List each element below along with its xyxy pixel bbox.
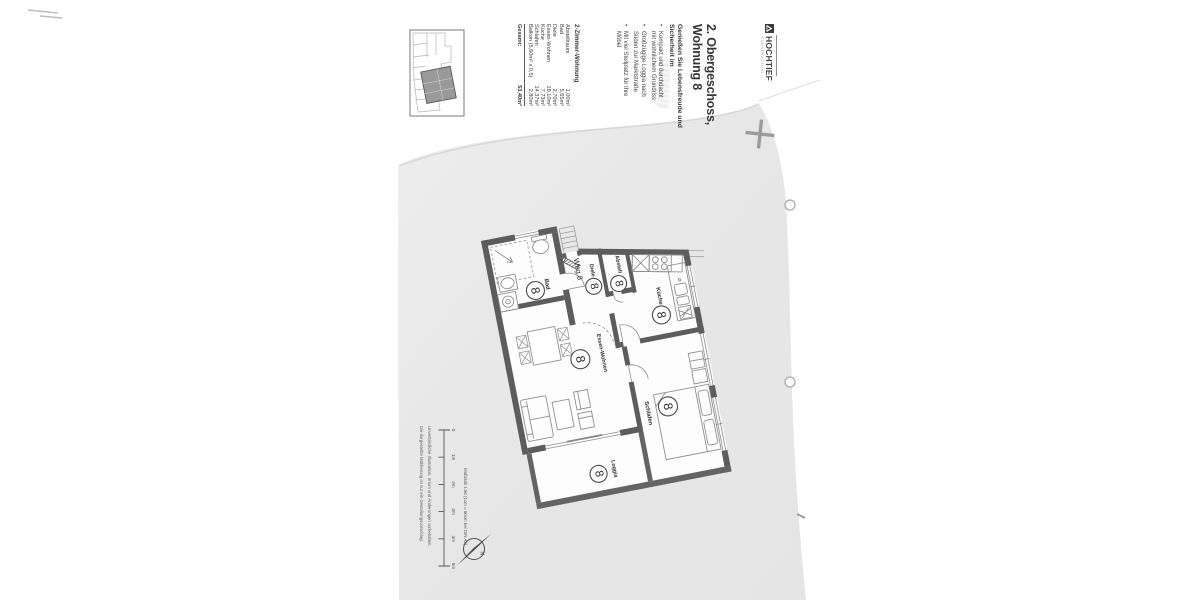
svg-text:0: 0 [451, 429, 456, 432]
svg-text:1m: 1m [451, 454, 456, 461]
svg-text:2m: 2m [451, 481, 456, 488]
svg-text:N: N [479, 552, 485, 556]
svg-text:3m: 3m [451, 508, 456, 515]
